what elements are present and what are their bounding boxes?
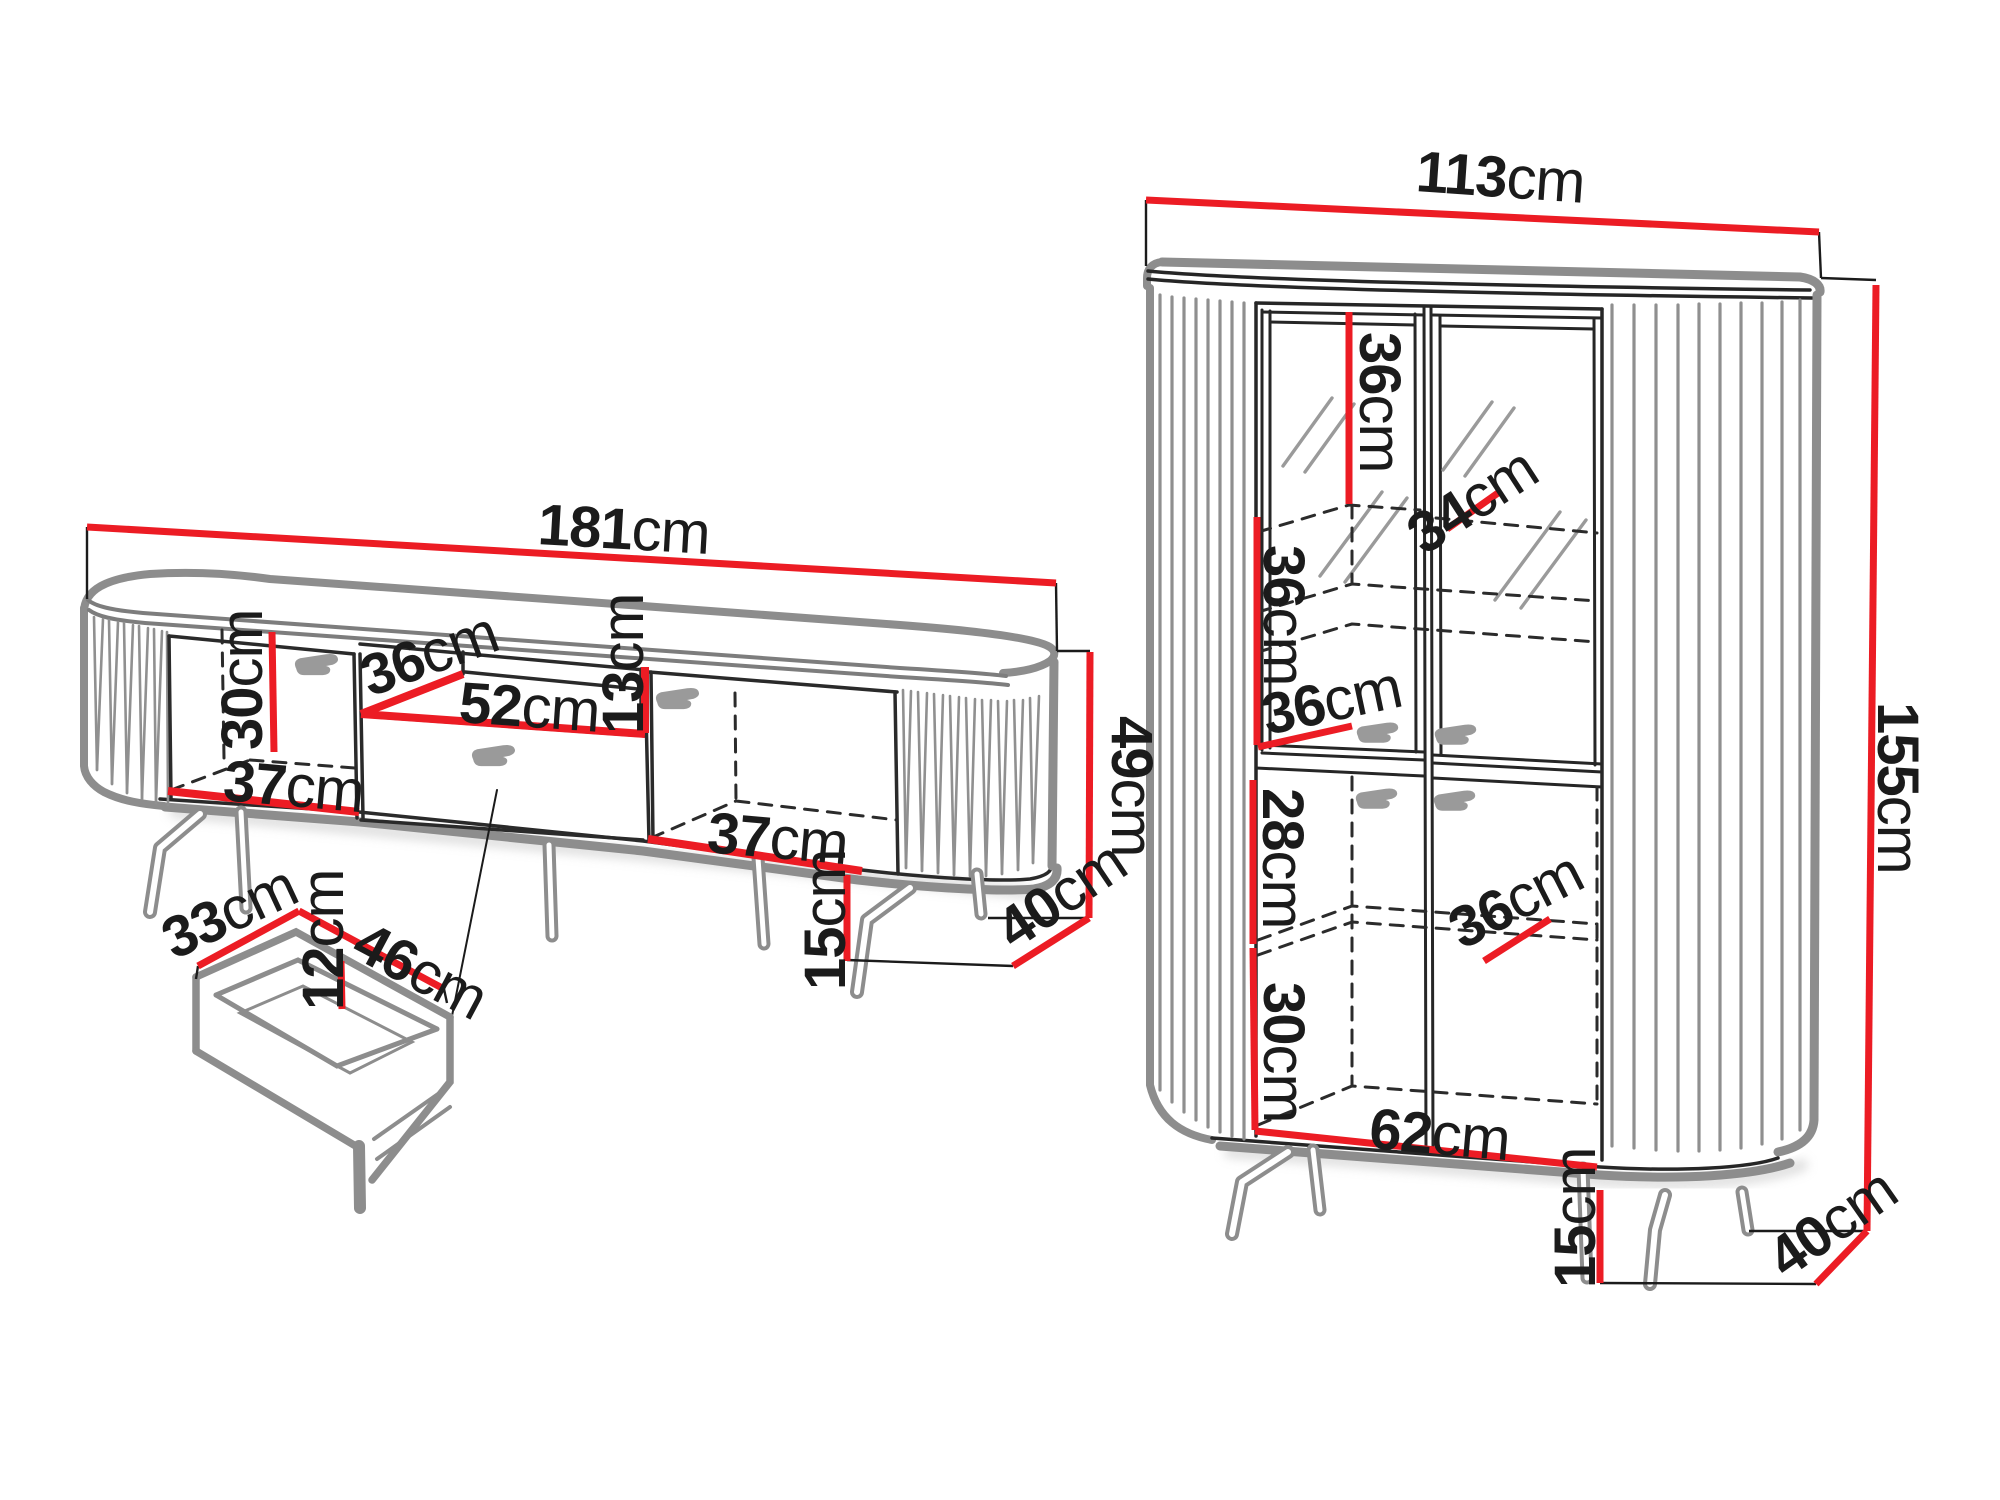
svg-text:113cm: 113cm — [1414, 137, 1587, 216]
svg-text:12cm: 12cm — [289, 870, 356, 1011]
svg-text:28cm: 28cm — [1250, 788, 1317, 929]
svg-text:52cm: 52cm — [457, 668, 602, 745]
svg-text:37cm: 37cm — [221, 746, 367, 825]
svg-text:155cm: 155cm — [1865, 702, 1932, 874]
svg-text:30cm: 30cm — [208, 610, 275, 751]
svg-text:181cm: 181cm — [536, 490, 711, 567]
svg-text:15cm: 15cm — [1541, 1148, 1608, 1289]
svg-text:30cm: 30cm — [1251, 982, 1318, 1123]
svg-text:49cm: 49cm — [1099, 716, 1166, 857]
svg-text:13cm: 13cm — [589, 594, 656, 735]
svg-text:62cm: 62cm — [1367, 1094, 1513, 1173]
svg-text:15cm: 15cm — [791, 850, 858, 991]
svg-text:36cm: 36cm — [1347, 332, 1414, 473]
svg-text:36cm: 36cm — [1251, 545, 1318, 686]
